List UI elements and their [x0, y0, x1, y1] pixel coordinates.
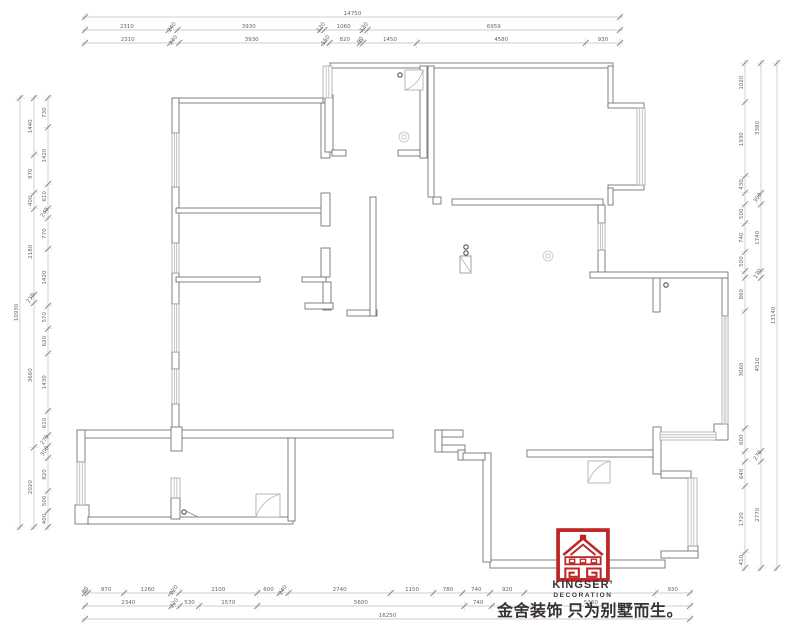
svg-text:500: 500	[739, 256, 745, 267]
svg-text:610: 610	[42, 191, 48, 202]
svg-text:1260: 1260	[141, 587, 155, 593]
windows-layer	[77, 66, 728, 546]
svg-text:3930: 3930	[245, 37, 259, 43]
svg-text:400: 400	[42, 513, 48, 524]
svg-text:150: 150	[321, 34, 332, 46]
kingser-logo-mark	[558, 530, 608, 580]
svg-text:820: 820	[340, 37, 351, 43]
svg-text:1440: 1440	[28, 119, 34, 133]
svg-text:530: 530	[184, 600, 195, 606]
svg-text:930: 930	[598, 37, 609, 43]
svg-text:120: 120	[316, 21, 327, 33]
svg-text:1720: 1720	[739, 512, 745, 526]
svg-text:600: 600	[739, 434, 745, 445]
svg-text:740: 740	[471, 587, 482, 593]
svg-text:860: 860	[739, 288, 745, 299]
svg-text:730: 730	[42, 107, 48, 118]
floor-plan-canvas: 1475023102403930120106013069592310240393…	[0, 0, 800, 640]
svg-text:2020: 2020	[28, 480, 34, 494]
svg-text:780: 780	[443, 587, 454, 593]
svg-text:2310: 2310	[121, 37, 135, 43]
svg-text:500: 500	[739, 208, 745, 219]
svg-text:1740: 1740	[755, 230, 761, 244]
svg-text:3930: 3930	[242, 24, 256, 30]
svg-text:770: 770	[42, 228, 48, 239]
svg-text:1430: 1430	[42, 375, 48, 389]
svg-text:1020: 1020	[739, 75, 745, 89]
svg-text:2310: 2310	[120, 24, 134, 30]
svg-text:640: 640	[739, 468, 745, 479]
svg-text:2770: 2770	[755, 507, 761, 521]
kingser-logo	[556, 528, 610, 582]
svg-text:10930: 10930	[14, 303, 20, 321]
svg-text:1570: 1570	[221, 600, 235, 606]
svg-text:300: 300	[40, 445, 51, 457]
floorplan-document: 1475023102403930120106013069592310240393…	[0, 0, 800, 640]
svg-text:410: 410	[739, 554, 745, 565]
svg-text:1420: 1420	[42, 270, 48, 284]
dimension-chains: 1475023102403930120106013069592310240393…	[14, 11, 782, 624]
svg-text:3660: 3660	[28, 368, 34, 382]
svg-text:300: 300	[753, 192, 764, 204]
svg-text:430: 430	[739, 179, 745, 190]
svg-text:2180: 2180	[28, 244, 34, 258]
svg-text:3380: 3380	[755, 120, 761, 134]
svg-text:1420: 1420	[42, 148, 48, 162]
svg-text:16250: 16250	[379, 613, 397, 619]
svg-text:2340: 2340	[121, 600, 135, 606]
svg-text:620: 620	[42, 335, 48, 346]
svg-text:220: 220	[169, 597, 180, 609]
svg-text:5600: 5600	[354, 600, 368, 606]
svg-text:970: 970	[28, 168, 34, 179]
svg-text:740: 740	[739, 232, 745, 243]
svg-text:930: 930	[667, 587, 678, 593]
svg-text:2100: 2100	[211, 587, 225, 593]
svg-text:4580: 4580	[494, 37, 508, 43]
svg-text:2740: 2740	[333, 587, 347, 593]
svg-text:1060: 1060	[337, 24, 351, 30]
svg-text:6959: 6959	[487, 24, 501, 30]
svg-text:970: 970	[101, 587, 112, 593]
svg-text:3060: 3060	[739, 362, 745, 376]
svg-text:80: 80	[81, 585, 90, 595]
svg-text:13140: 13140	[771, 306, 777, 324]
svg-text:130: 130	[359, 21, 370, 33]
svg-text:500: 500	[42, 495, 48, 506]
brand-name: KINGSER’	[540, 580, 626, 591]
svg-text:570: 570	[42, 312, 48, 323]
svg-text:1150: 1150	[405, 587, 419, 593]
svg-text:90: 90	[356, 35, 365, 45]
svg-text:610: 610	[42, 417, 48, 428]
svg-text:1450: 1450	[383, 37, 397, 43]
svg-text:740: 740	[473, 600, 484, 606]
svg-text:820: 820	[42, 469, 48, 480]
svg-text:600: 600	[263, 587, 274, 593]
svg-text:14750: 14750	[344, 11, 362, 17]
svg-text:1930: 1930	[739, 132, 745, 146]
brand-slogan: 金舍装饰 只为别墅而生。	[497, 597, 697, 621]
svg-text:220: 220	[169, 584, 180, 596]
svg-text:920: 920	[502, 587, 513, 593]
svg-text:400: 400	[28, 195, 34, 206]
svg-text:4510: 4510	[755, 357, 761, 371]
